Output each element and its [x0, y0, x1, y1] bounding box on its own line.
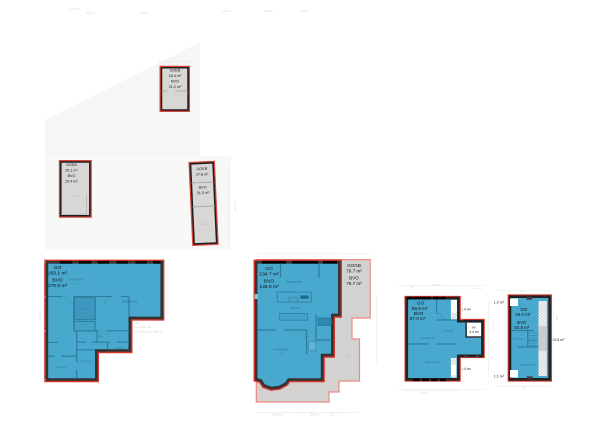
svg-text:GOEB: GOEB [66, 163, 77, 167]
svg-text:2.96 m: 2.96 m [222, 9, 231, 13]
svg-text:woonkamer: woonkamer [420, 336, 436, 340]
svg-text:GOEB: GOEB [170, 68, 181, 72]
svg-text:1.4 m²: 1.4 m² [461, 308, 471, 312]
svg-text:54.8 m²: 54.8 m² [514, 325, 529, 330]
svg-text:29.4 m²: 29.4 m² [65, 180, 78, 184]
svg-text:18.4 m²: 18.4 m² [169, 74, 182, 78]
svg-text:keuken: keuken [290, 306, 301, 310]
svg-text:1.0 m²: 1.0 m² [494, 301, 505, 305]
svg-text:ca. 28 m²: ca. 28 m² [71, 283, 80, 286]
svg-text:voorkamer: voorkamer [273, 348, 289, 352]
svg-text:BVO: BVO [349, 276, 359, 281]
svg-text:slaapkamer: slaapkamer [286, 280, 303, 284]
svg-text:garage: garage [200, 222, 209, 226]
svg-text:3.20 m: 3.20 m [491, 321, 495, 330]
svg-text:8.10 m: 8.10 m [233, 201, 237, 210]
svg-text:4.1: 4.1 [520, 289, 524, 293]
svg-text:163.1 m²: 163.1 m² [48, 271, 68, 277]
svg-text:slaapkamer: slaapkamer [122, 300, 139, 304]
svg-text:ca. 119.0 m x 25.6 m: ca. 119.0 m x 25.6 m [135, 329, 163, 333]
svg-text:79.7 m²: 79.7 m² [346, 269, 362, 274]
svg-text:10.6 m²: 10.6 m² [552, 338, 565, 342]
svg-text:BVO: BVO [264, 279, 275, 285]
svg-text:voorkamer: voorkamer [68, 278, 84, 282]
svg-text:vv.: vv. [472, 326, 476, 330]
svg-text:3.10 m: 3.10 m [300, 9, 309, 13]
svg-text:2.1: 2.1 [330, 412, 335, 416]
svg-text:2.96 m: 2.96 m [140, 11, 149, 15]
svg-text:bad: bad [82, 307, 87, 311]
svg-text:5.32 m: 5.32 m [310, 412, 320, 416]
svg-text:4.0: 4.0 [522, 385, 526, 389]
svg-text:slaapkamer: slaapkamer [520, 363, 536, 367]
svg-text:overloop: overloop [512, 337, 523, 341]
svg-text:29.1 m²: 29.1 m² [65, 169, 78, 173]
svg-text:tuin: tuin [135, 321, 140, 325]
svg-text:4.2: 4.2 [410, 285, 414, 289]
svg-text:GOGB: GOGB [347, 263, 361, 268]
svg-text:21.2 m²: 21.2 m² [169, 85, 182, 89]
svg-text:slaapkamer: slaapkamer [425, 360, 441, 364]
svg-text:14.60 m: 14.60 m [70, 7, 81, 11]
svg-text:hal: hal [305, 335, 309, 339]
svg-text:berging: berging [528, 338, 537, 342]
svg-text:BVO: BVO [171, 79, 179, 83]
svg-text:berging: berging [115, 345, 124, 349]
svg-text:134.7 m²: 134.7 m² [259, 272, 279, 278]
svg-text:87.0 m²: 87.0 m² [410, 316, 426, 321]
svg-text:2.2: 2.2 [460, 296, 464, 300]
svg-text:27.6 m²: 27.6 m² [196, 172, 209, 177]
svg-text:11.87 m: 11.87 m [38, 309, 42, 320]
svg-text:34.0 m²: 34.0 m² [515, 312, 530, 317]
svg-text:tuin: tuin [346, 354, 351, 358]
svg-text:berging: berging [56, 365, 66, 369]
svg-text:8.9: 8.9 [555, 316, 559, 320]
svg-text:·: · [85, 326, 86, 329]
svg-text:4.4 m²: 4.4 m² [469, 330, 479, 334]
svg-text:BVO: BVO [68, 174, 76, 178]
svg-text:ca. 30 m²: ca. 30 m² [276, 353, 285, 356]
svg-text:hal: hal [98, 334, 102, 338]
svg-text:1.4 m²: 1.4 m² [461, 367, 471, 371]
svg-text:31.5 m²: 31.5 m² [197, 191, 210, 196]
svg-text:179.9 m²: 179.9 m² [48, 283, 68, 289]
svg-text:1.1 m²: 1.1 m² [494, 375, 505, 379]
svg-text:4.28 m: 4.28 m [420, 391, 429, 395]
svg-text:13.95 m: 13.95 m [272, 412, 283, 416]
svg-text:GO: GO [54, 265, 62, 271]
svg-text:79.7 m²: 79.7 m² [346, 281, 362, 286]
svg-text:5.32 m: 5.32 m [86, 11, 95, 15]
svg-text:BVO: BVO [199, 185, 207, 189]
svg-text:4.56 m: 4.56 m [432, 283, 441, 287]
svg-text:4.82 m: 4.82 m [264, 9, 273, 13]
svg-text:GOEB: GOEB [197, 167, 208, 172]
svg-text:tuinhuis: tuinhuis [71, 194, 81, 198]
svg-text:148.9 m²: 148.9 m² [259, 284, 279, 290]
svg-text:BVO: BVO [52, 278, 63, 284]
svg-text:GO: GO [417, 301, 425, 306]
svg-text:berging: berging [81, 359, 91, 363]
svg-text:overloop: overloop [442, 329, 453, 333]
svg-text:GO: GO [265, 266, 273, 272]
